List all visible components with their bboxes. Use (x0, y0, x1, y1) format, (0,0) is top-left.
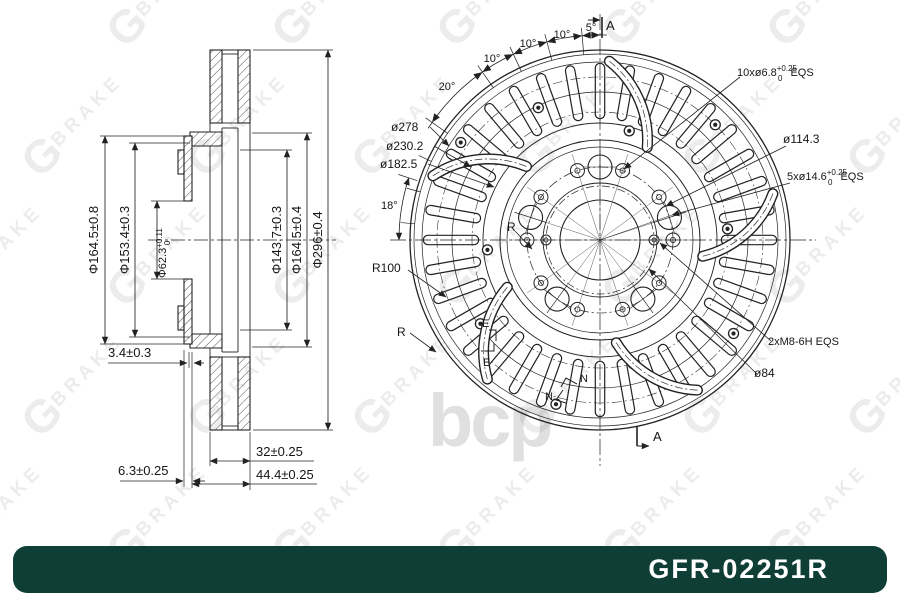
angle-10c-label: 10° (484, 53, 501, 65)
angle-18-label: 18° (381, 200, 398, 212)
hub-pcd-label: ø84 (754, 366, 775, 380)
vane-r2-label: R (507, 220, 516, 234)
dim-bore: Φ62.3+0.110 (155, 228, 172, 278)
technical-drawing-canvas: Φ164.5±0.8 Φ153.4±0.3 Φ62.3+0.110 Φ143.7… (0, 0, 900, 545)
dim-step: 3.4±0.3 (108, 345, 151, 360)
dim-flange-thickness: 6.3±0.25 (118, 463, 169, 478)
angle-5-label: 5° (586, 22, 597, 34)
angle-18-arc (399, 178, 409, 240)
vane-radius-label: R100 (372, 261, 401, 275)
section-e2-label: E (483, 357, 490, 369)
angle-10b-label: 10° (520, 38, 537, 50)
dim-hat-od: Φ153.4±0.3 (117, 206, 132, 274)
angle-20-label: 20° (439, 81, 456, 93)
part-number-label: GFR-02251R (648, 554, 829, 585)
dim-overall-height: 44.4±0.25 (256, 467, 314, 482)
dim-ring-id: Φ164.5±0.4 (289, 206, 304, 274)
section-n1-label: N (580, 373, 588, 385)
service-holes-label: 2xM8-6H EQS (768, 336, 839, 348)
brake-disc-drawing: GBRAKEGBRAKEGBRAKEGBRAKEGBRAKEGBRAKEGBRA… (0, 0, 900, 600)
dim-disc-od: Φ296±0.4 (310, 211, 325, 268)
angle-10a-label: 10° (554, 29, 571, 41)
dim-flange-od: Φ164.5±0.8 (86, 206, 101, 274)
holes-small-spec: 10xø6.8+0.250EQS (737, 64, 814, 83)
section-e1-label: E (482, 318, 489, 330)
dim-ring-thickness: 32±0.25 (256, 444, 303, 459)
vane-r1-label: R (397, 325, 406, 339)
front-view: 10xø6.8+0.250EQS ø114.3 5xø14.6+0.250EQS… (372, 14, 864, 466)
section-n2-label: N (545, 391, 553, 403)
vent-outer-label: ø278 (391, 120, 419, 134)
part-number-banner: GFR-02251R (13, 546, 887, 593)
section-a-bottom-label: A (653, 429, 662, 444)
holes-large-spec: 5xø14.6+0.250EQS (787, 168, 864, 187)
pcd-label: ø114.3 (783, 132, 820, 146)
section-a-top-label: A (606, 18, 615, 33)
dim-hat-id: Φ143.7±0.3 (269, 206, 284, 274)
vent-mid-label: ø230.2 (386, 139, 424, 153)
vent-inner-label: ø182.5 (380, 157, 418, 171)
